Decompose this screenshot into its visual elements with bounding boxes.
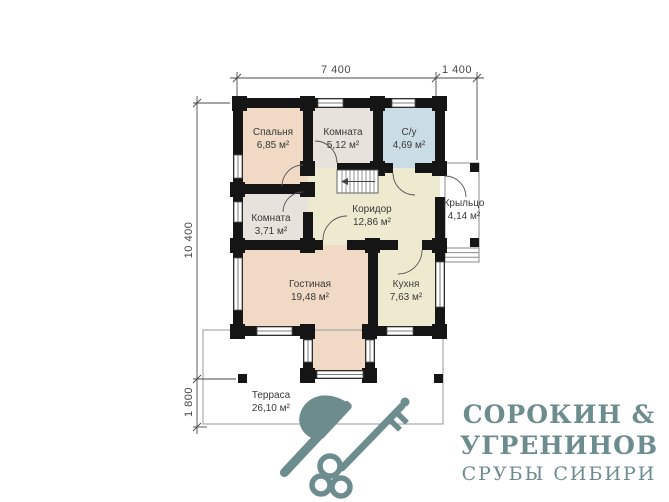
room-label-room-top: Комната 5,12 м² [323, 126, 362, 152]
porch-post-top [470, 163, 479, 172]
living-bay-floor [308, 326, 370, 375]
room-label-kitchen: Кухня 7,63 м² [390, 278, 422, 304]
staircase [337, 170, 378, 193]
logo-company-name-1: СОРОКИН & [450, 399, 668, 430]
porch-steps [445, 248, 479, 262]
porch-post-bottom [470, 238, 479, 247]
room-label-porch: Крыльцо 4,14 м² [444, 197, 485, 223]
room-label-room-mid: Комната 3,71 м² [251, 212, 290, 238]
dim-top-right: 1 400 [442, 64, 472, 76]
floor-plan-page: Спальня 6,85 м² Комната 5,12 м² С/у 4,69… [0, 0, 669, 502]
room-label-terrace: Терраса 26,10 м² [252, 389, 290, 415]
room-label-corridor: Коридор 12,86 м² [352, 203, 392, 229]
dim-left-bottom: 1 800 [183, 387, 195, 417]
logo-company-name-2: УГРЕНИНОВ [450, 430, 668, 461]
room-label-living: Гостиная 19,48 м² [289, 278, 331, 304]
logo-tagline: СРУБЫ СИБИРИ [450, 461, 668, 487]
dim-left-main: 10 400 [183, 222, 195, 259]
room-label-bathroom: С/у 4,69 м² [393, 126, 425, 152]
room-label-bedroom: Спальня 6,85 м² [253, 126, 293, 152]
logo-wordmark: СОРОКИН & УГРЕНИНОВ СРУБЫ СИБИРИ [450, 399, 668, 487]
dim-top-main: 7 400 [321, 64, 351, 76]
